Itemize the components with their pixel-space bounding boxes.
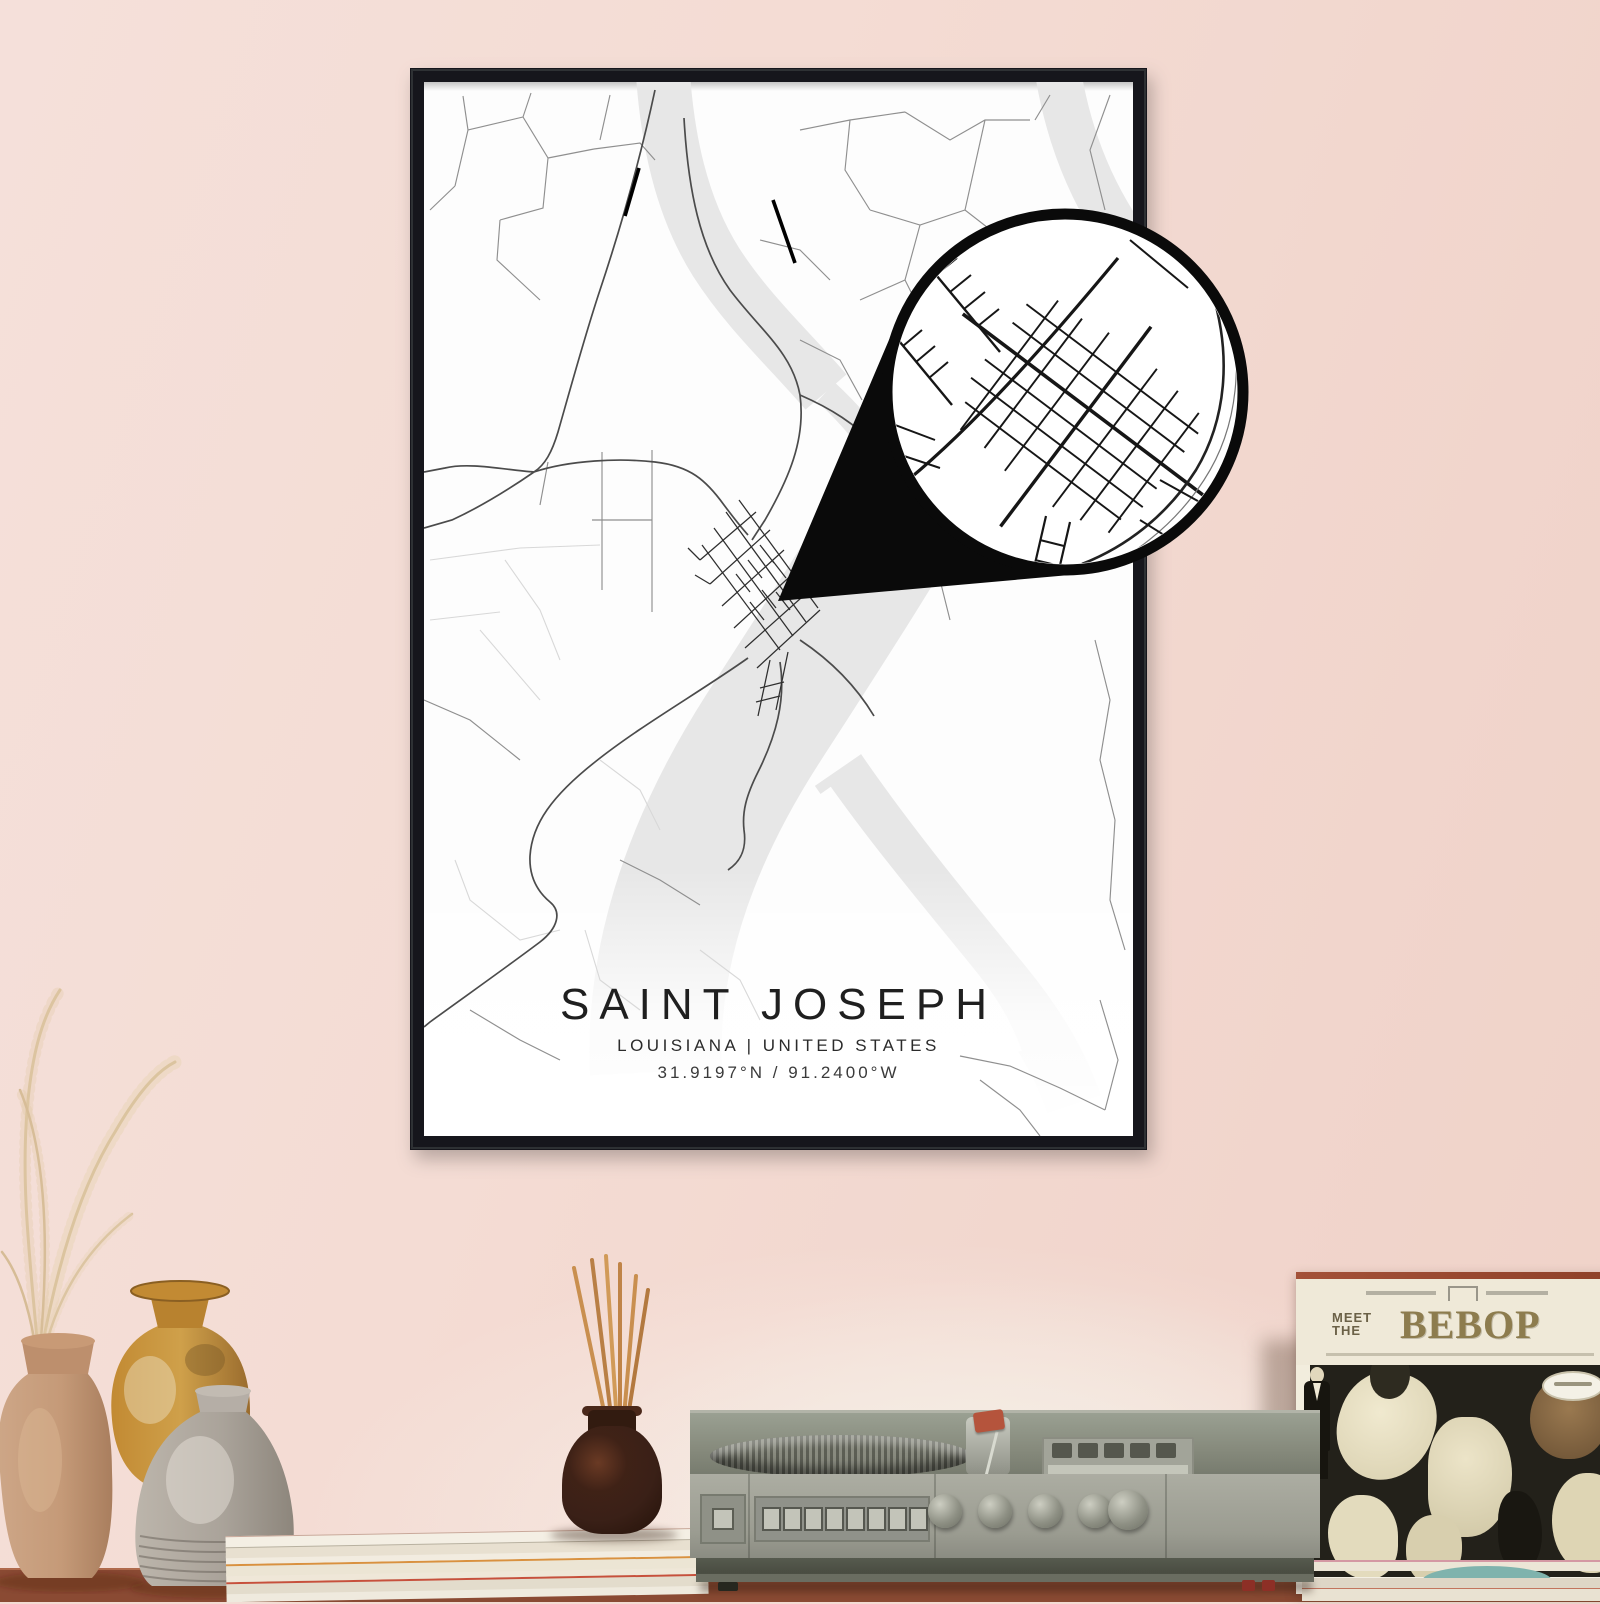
player-foot	[718, 1582, 738, 1591]
record-label-logo-icon	[1542, 1371, 1600, 1401]
stereo-mark-icon	[1448, 1286, 1478, 1301]
volume-knob	[1108, 1490, 1148, 1530]
player-plinth-strip	[696, 1574, 1314, 1582]
preset-key	[1104, 1443, 1124, 1458]
push-button-row	[754, 1496, 930, 1542]
reed-diffuser	[540, 1250, 710, 1550]
sleeve-small-print	[1366, 1291, 1436, 1295]
control-knob	[1078, 1494, 1112, 1528]
record-player	[690, 1398, 1320, 1594]
paper-pile	[1302, 1552, 1600, 1600]
turntable-platter	[710, 1435, 972, 1477]
paper-sheet	[1302, 1578, 1600, 1588]
push-button	[888, 1507, 907, 1531]
panel-seam	[1165, 1474, 1167, 1558]
paper-sheet	[1302, 1588, 1600, 1601]
preset-key	[1130, 1443, 1150, 1458]
vase-tan	[0, 1333, 112, 1578]
poster-title: SAINT JOSEPH	[424, 980, 1133, 1030]
push-button	[804, 1507, 823, 1531]
push-button	[867, 1507, 886, 1531]
push-button	[783, 1507, 802, 1531]
poster-subtitle: LOUISIANA | UNITED STATES	[424, 1036, 1133, 1056]
control-knob	[978, 1494, 1012, 1528]
sleeve-pretitle: MEET THE	[1332, 1311, 1372, 1337]
record-sleeve: MEET THE BEBOP	[1296, 1272, 1600, 1594]
panel-seam	[748, 1474, 750, 1558]
player-front-panel	[690, 1474, 1320, 1558]
diffuser-bottle	[562, 1426, 662, 1534]
preset-key	[1078, 1443, 1098, 1458]
sleeve-small-print	[1486, 1291, 1548, 1295]
push-button	[762, 1507, 781, 1531]
sleeve-artwork	[1310, 1365, 1600, 1577]
push-button	[825, 1507, 844, 1531]
sleeve-credit-line	[1326, 1353, 1594, 1356]
tonearm-cartridge	[973, 1409, 1005, 1433]
sleeve-title: BEBOP	[1400, 1301, 1541, 1348]
preset-key	[1156, 1443, 1176, 1458]
poster-coordinates: 31.9197°N / 91.2400°W	[424, 1063, 1133, 1083]
player-top-deck	[690, 1410, 1320, 1477]
power-button	[700, 1494, 746, 1544]
control-knob	[928, 1494, 962, 1528]
sleeve-top-edge	[1296, 1272, 1600, 1279]
push-button	[909, 1507, 928, 1531]
player-foot-red	[1262, 1580, 1275, 1591]
preset-key	[1052, 1443, 1072, 1458]
sleeve-header: MEET THE BEBOP	[1296, 1279, 1600, 1365]
push-button	[846, 1507, 865, 1531]
control-knob	[1028, 1494, 1062, 1528]
player-foot-red	[1242, 1580, 1255, 1591]
